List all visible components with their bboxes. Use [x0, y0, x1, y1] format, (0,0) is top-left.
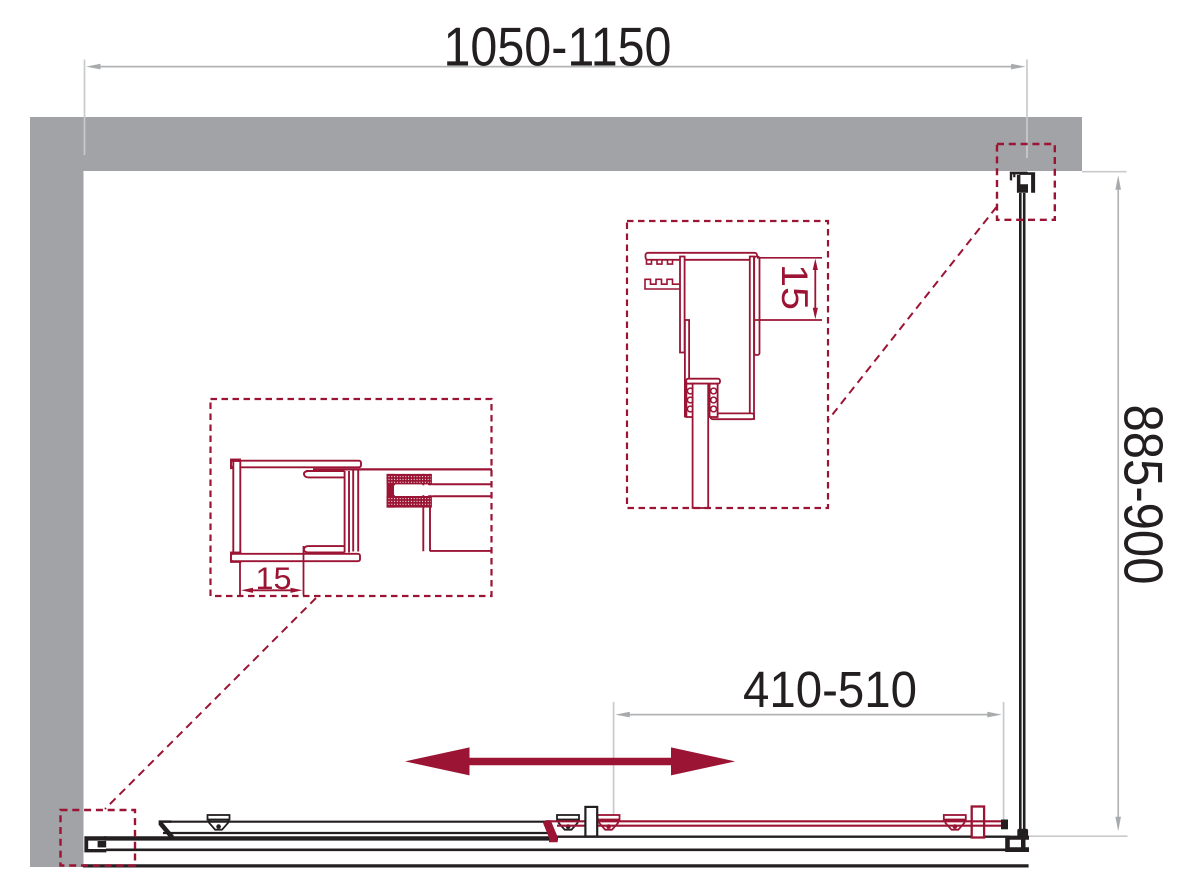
svg-text:1050-1150: 1050-1150	[444, 16, 672, 78]
svg-text:885-900: 885-900	[1113, 405, 1175, 585]
svg-text:410-510: 410-510	[743, 661, 917, 718]
svg-text:15: 15	[774, 264, 816, 310]
svg-text:15: 15	[256, 560, 292, 596]
